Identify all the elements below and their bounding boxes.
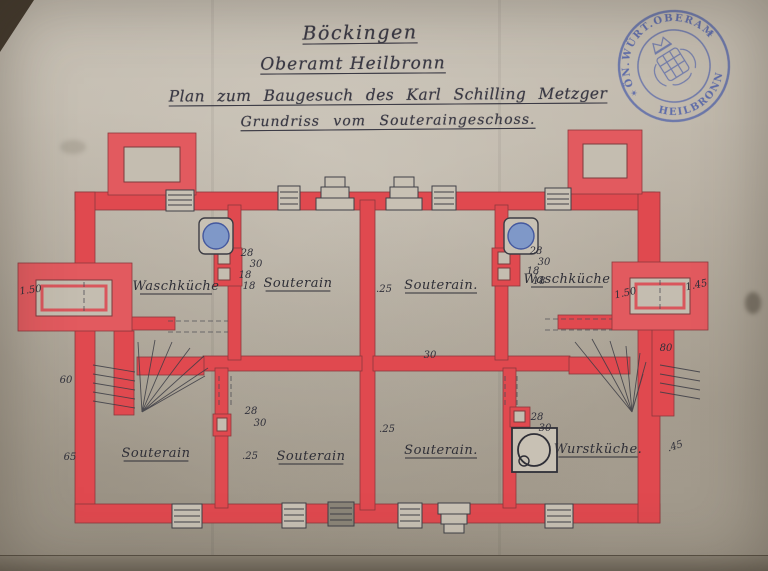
- dimension-label: 80: [660, 343, 673, 354]
- room-top-mid-right-label: Souterain.: [404, 278, 478, 293]
- dimension-label: 28: [244, 406, 258, 417]
- room-bottom-mid-left-label: Souterain: [276, 449, 345, 464]
- dimension-label: .25: [376, 284, 392, 295]
- room-bottom-mid-right-label: Souterain.: [404, 443, 478, 458]
- room-top-left-label: Waschküche: [133, 279, 220, 294]
- window-icon: [545, 188, 571, 210]
- dimension-label: 28: [240, 248, 254, 259]
- dimension-label: 18: [533, 276, 546, 287]
- lightwell-steps-icon: [438, 503, 470, 533]
- stairs-left: [93, 340, 208, 412]
- stairs-right: [575, 339, 700, 412]
- dimension-label: 30: [250, 259, 263, 270]
- dimension-label: 18: [243, 281, 256, 292]
- dimension-label: .25: [379, 424, 395, 435]
- dimension-label: 28: [530, 412, 544, 423]
- wash-kettle-top-left: [199, 218, 233, 254]
- window-icon: [398, 503, 422, 528]
- light-shaft-bay-left: [18, 263, 132, 331]
- dimension-label: 30: [539, 423, 552, 434]
- lightwell-steps-icon: [316, 177, 354, 210]
- window-icon: [282, 503, 306, 528]
- window-icon: [432, 186, 456, 210]
- window-icon: [278, 186, 300, 210]
- window-icon: [328, 502, 354, 526]
- dimension-label: 60: [60, 375, 73, 386]
- dimension-label: 30: [424, 350, 437, 361]
- room-top-mid-left-label: Souterain: [263, 276, 332, 291]
- lightwell-steps-icon: [386, 177, 422, 210]
- dimension-label: 30: [254, 418, 267, 429]
- room-bottom-right-label: Wurstküche.: [554, 442, 643, 457]
- photo-bottom-shadow: [0, 555, 768, 571]
- scanned-plan-photo: Böckingen Oberamt Heilbronn Plan zum Bau…: [0, 0, 768, 571]
- dimension-label: 18: [239, 270, 252, 281]
- window-icon: [166, 190, 194, 211]
- dimension-label: 30: [538, 257, 551, 268]
- window-icon: [172, 504, 202, 528]
- dimension-label: 65: [64, 452, 77, 463]
- floor-plan: WaschkücheSouterainSouterain.WaschkücheS…: [0, 0, 768, 571]
- chimney-top-left: [108, 133, 196, 195]
- dimension-label: .45: [666, 439, 685, 454]
- dimension-label: 28: [529, 246, 543, 257]
- kettle-bottom-right: [512, 428, 557, 472]
- dimension-label: .25: [242, 451, 258, 462]
- window-icon: [545, 504, 573, 528]
- chimney-top-right: [568, 130, 642, 194]
- flue-block-bottom-left: [213, 414, 231, 436]
- flue-block-bottom-right: [510, 407, 530, 427]
- room-bottom-left-label: Souterain: [121, 446, 190, 461]
